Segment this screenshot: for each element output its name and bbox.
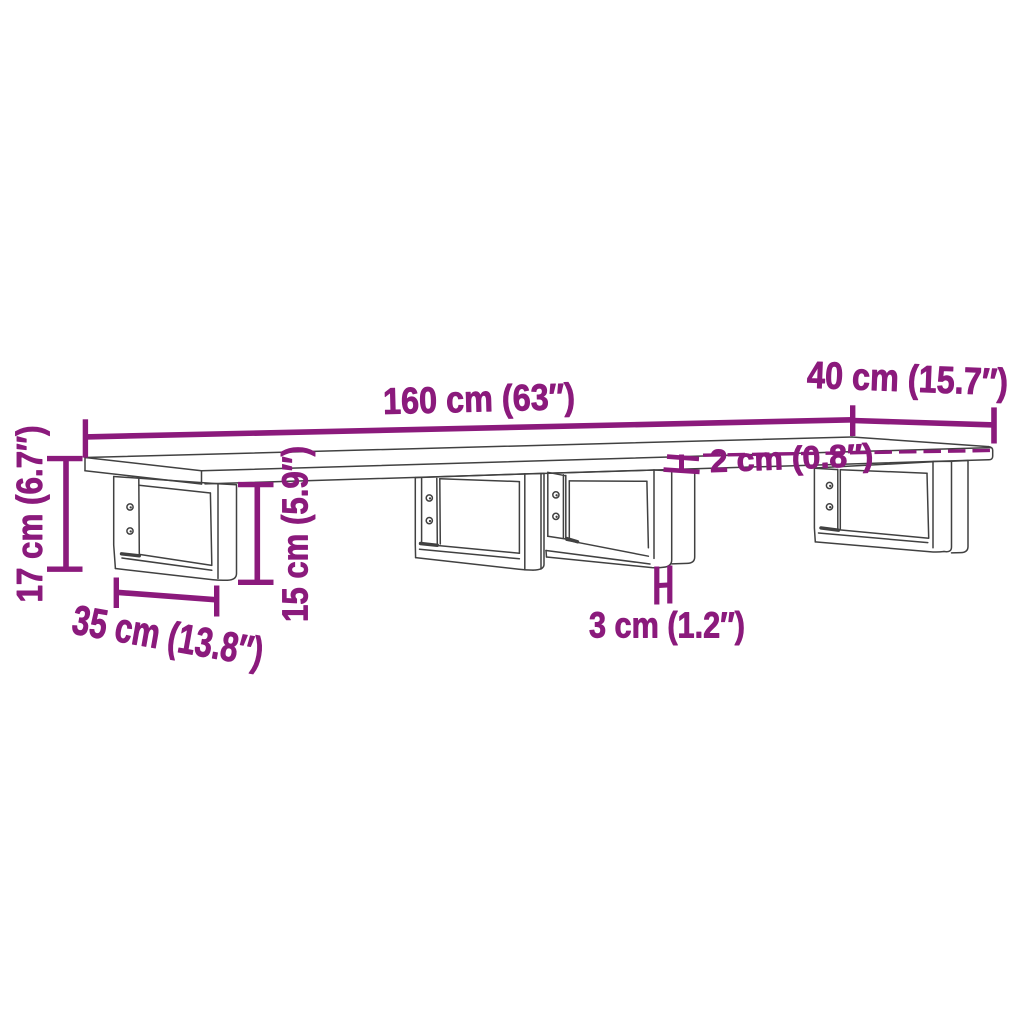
svg-text:2 cm (0.8″): 2 cm (0.8″) [709,437,874,479]
svg-text:40 cm (15.7″): 40 cm (15.7″) [806,355,1008,405]
svg-text:160 cm (63″): 160 cm (63″) [382,376,575,422]
svg-text:17 cm (6.7″): 17 cm (6.7″) [9,426,50,603]
svg-text:3 cm (1.2″): 3 cm (1.2″) [589,605,745,646]
svg-text:15 cm (5.9″): 15 cm (5.9″) [275,446,316,622]
